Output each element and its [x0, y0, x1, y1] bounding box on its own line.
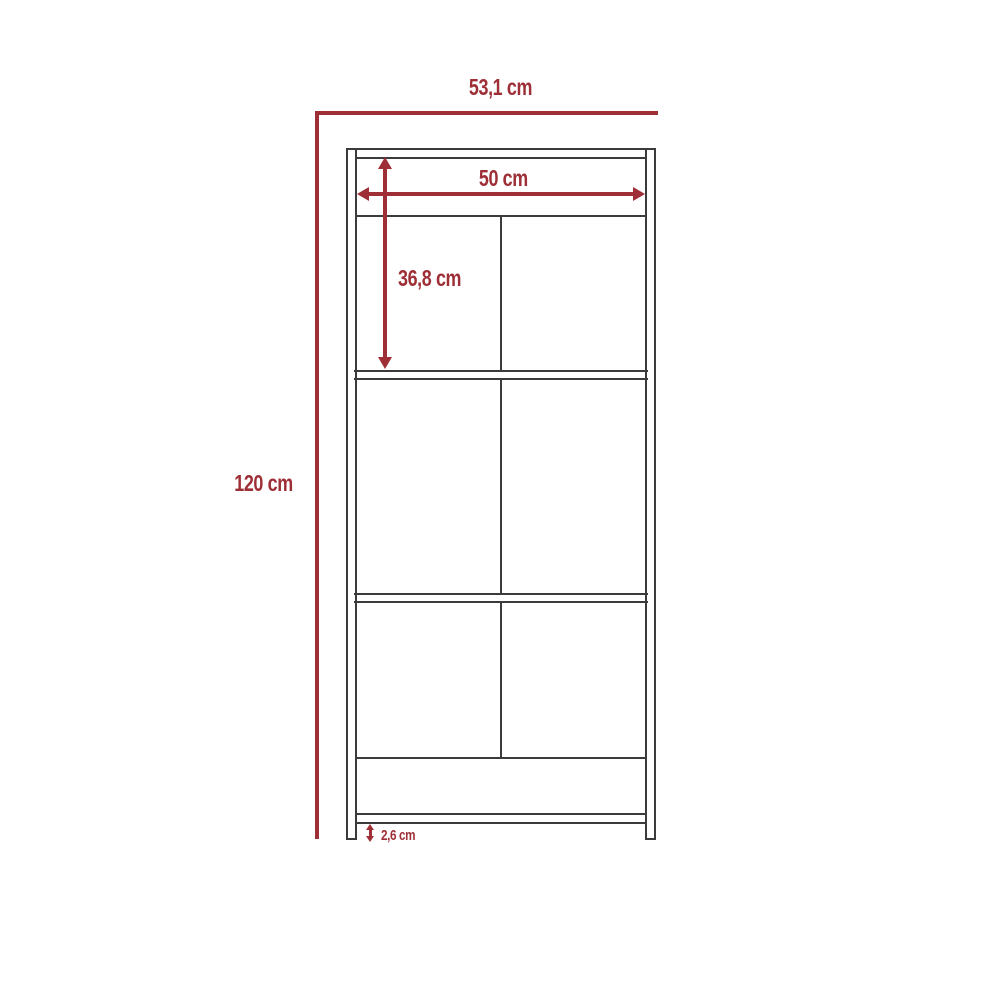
- shelf2-top-edge: [354, 593, 648, 595]
- base-clearance-label-wrap: 2,6 cm: [381, 828, 425, 843]
- base-clearance-arrow: [366, 824, 374, 842]
- inner-width-label: 50 cm: [479, 167, 528, 190]
- base-clearance-arrow-shaft: [369, 829, 372, 837]
- base-clearance-label: 2,6 cm: [381, 828, 415, 843]
- outer-width-dimension-line: [315, 111, 658, 115]
- left-side-panel: [346, 148, 357, 840]
- top-section-height-arrow: [378, 157, 392, 369]
- total-height-label: 120 cm: [235, 472, 294, 495]
- lower-compartment-line: [356, 757, 646, 759]
- center-divider-lower: [500, 602, 502, 757]
- outer-width-label: 53,1 cm: [468, 76, 531, 99]
- top-board-outer-edge: [346, 148, 656, 150]
- inner-width-arrow-shaft: [366, 192, 636, 196]
- right-side-panel: [645, 148, 656, 840]
- top-section-height-label-wrap: 36,8 cm: [398, 267, 479, 290]
- top-section-height-arrow-shaft: [383, 166, 387, 360]
- total-height-label-wrap: 120 cm: [184, 472, 344, 495]
- inner-width-label-wrap: 50 cm: [423, 167, 583, 190]
- center-divider-upper: [500, 216, 502, 370]
- center-divider-middle: [500, 379, 502, 593]
- top-section-height-label: 36,8 cm: [398, 267, 461, 290]
- top-board-inner-edge: [356, 157, 646, 159]
- bottom-board-bottom-edge: [356, 822, 646, 824]
- diagram-canvas: 53,1 cm 120 cm 50 cm 36,8 cm 2,6 cm: [0, 0, 1000, 1000]
- shelf1-top-edge: [354, 370, 648, 372]
- bottom-board-top-edge: [356, 813, 646, 815]
- outer-width-label-wrap: 53,1 cm: [420, 76, 580, 99]
